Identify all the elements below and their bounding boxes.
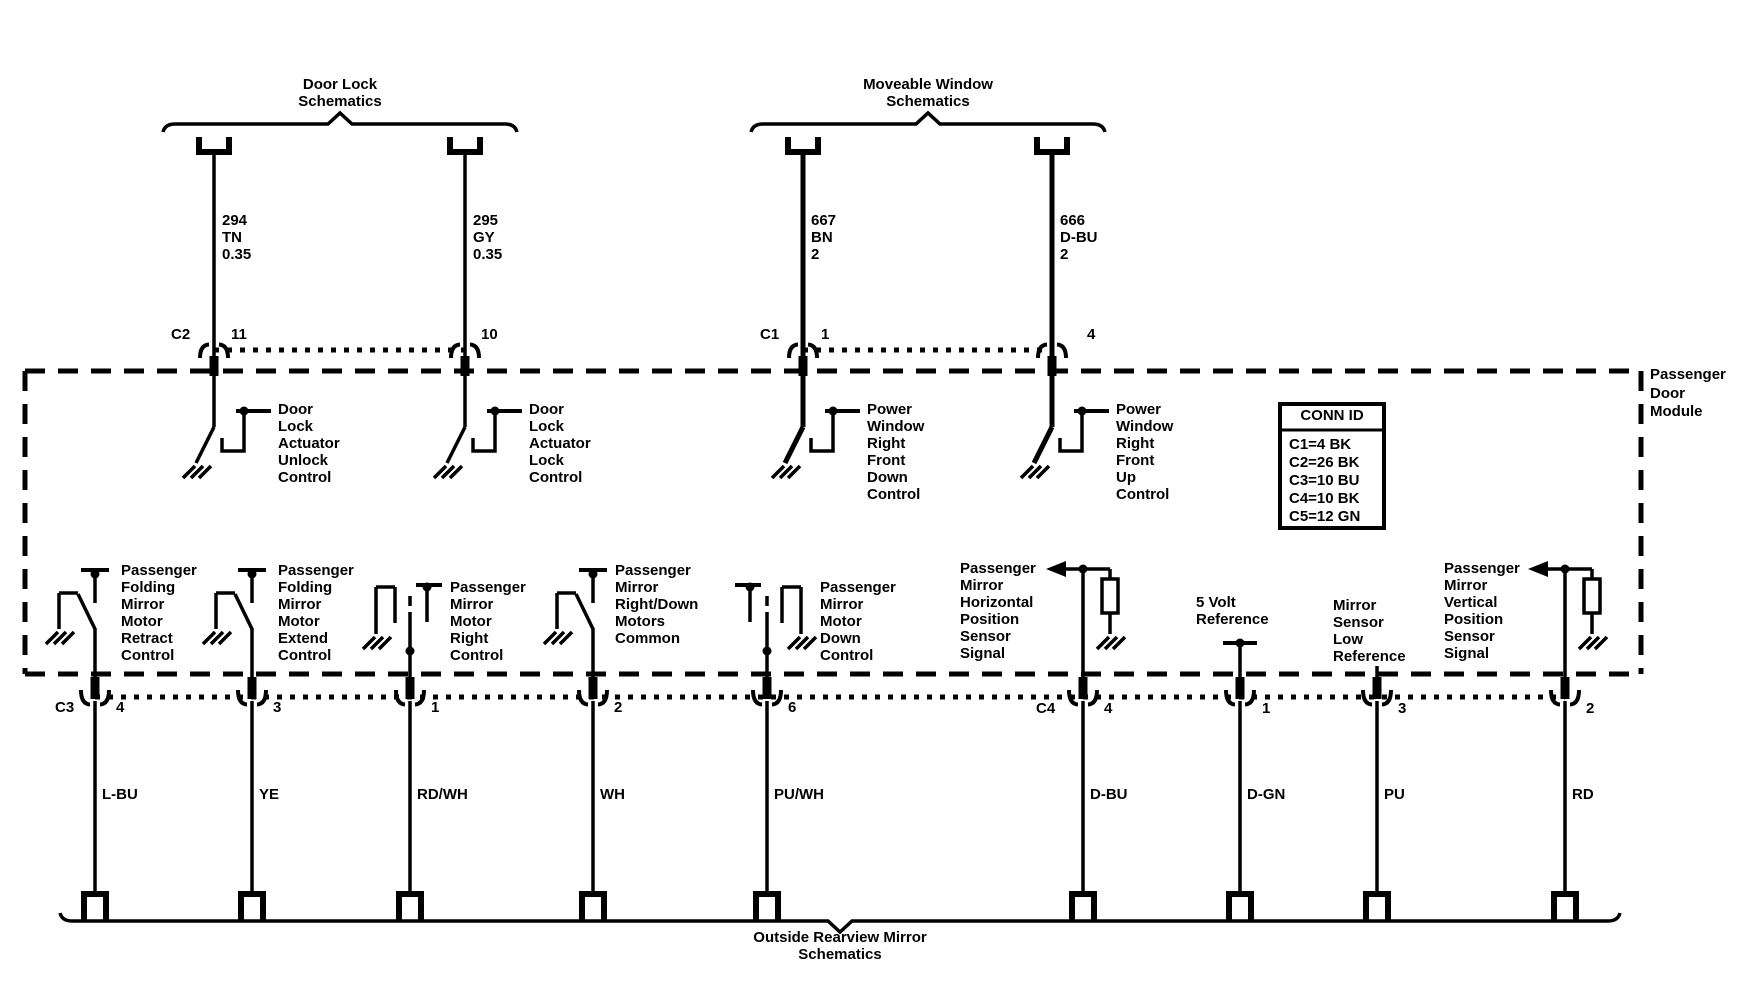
conn-id-title: CONN ID xyxy=(1300,407,1363,424)
connector-label-c1: C1 xyxy=(760,326,779,343)
pin-number: 4 xyxy=(1087,326,1095,343)
door-lock-brace xyxy=(163,113,517,132)
function-label: 5 Volt Reference xyxy=(1196,594,1269,628)
wire-color-label: RD xyxy=(1572,786,1594,803)
brace-label-door-lock: Door Lock Schematics xyxy=(298,76,381,110)
circuit-vertical-sensor xyxy=(1528,561,1607,920)
switch-contact-icon xyxy=(222,407,271,452)
switch-contact-icon xyxy=(1060,407,1109,452)
ground-icon xyxy=(544,632,572,644)
wire-color-label: YE xyxy=(259,786,279,803)
function-label: Power Window Right Front Up Control xyxy=(1116,401,1173,503)
circuit-mirror-retract xyxy=(46,570,109,921)
ground-icon xyxy=(772,466,800,478)
wire-color-label: RD/WH xyxy=(417,786,468,803)
pin-number: 2 xyxy=(1586,700,1594,717)
brace-label-outside-mirror: Outside Rearview Mirror Schematics xyxy=(753,929,926,963)
module-label: Passenger Door Module xyxy=(1650,366,1726,422)
pin-number: 4 xyxy=(116,699,124,716)
ground-icon xyxy=(434,466,462,478)
junction-dot xyxy=(248,570,257,579)
circuit-mirror-extend xyxy=(203,570,266,921)
resistor-icon xyxy=(1102,579,1118,613)
wire-label: 295 GY 0.35 xyxy=(473,212,502,263)
function-label: Mirror Sensor Low Reference xyxy=(1333,597,1406,665)
circuit-mirror-common xyxy=(544,570,607,921)
circuit-horizontal-sensor xyxy=(1046,561,1125,920)
switch-contact-icon xyxy=(811,407,860,452)
pin-number: 4 xyxy=(1104,700,1112,717)
circuit-window-down xyxy=(772,137,860,478)
switch-contact-icon xyxy=(416,583,442,623)
ground-icon xyxy=(363,637,391,649)
pin-number: 3 xyxy=(273,699,281,716)
wire-color-label: WH xyxy=(600,786,625,803)
function-label: Passenger Mirror Motor Right Control xyxy=(450,579,526,664)
junction-dot xyxy=(91,570,100,579)
harness-terminal xyxy=(1069,891,1097,920)
harness-terminal xyxy=(1034,137,1070,155)
wire-label: 294 TN 0.35 xyxy=(222,212,251,263)
switch-contact-icon xyxy=(473,407,522,452)
moveable-window-brace xyxy=(751,113,1105,132)
pin-number: 2 xyxy=(614,699,622,716)
function-label: Door Lock Actuator Lock Control xyxy=(529,401,591,486)
function-label: Passenger Mirror Motor Down Control xyxy=(820,579,896,664)
ground-icon xyxy=(46,632,74,644)
harness-terminal xyxy=(579,891,607,920)
harness-terminal xyxy=(396,891,424,920)
switch-contact-icon xyxy=(238,570,266,604)
conn-id-row: C3=10 BU xyxy=(1289,472,1359,489)
circuit-door-unlock xyxy=(183,137,271,478)
pin-number: 11 xyxy=(231,326,247,343)
junction-dot xyxy=(763,647,772,656)
conn-id-row: C1=4 BK xyxy=(1289,436,1351,453)
pin-number: 1 xyxy=(821,326,829,343)
pin-number: 3 xyxy=(1398,700,1406,717)
junction-dot xyxy=(406,647,415,656)
circuit-window-up xyxy=(1021,137,1109,478)
wire-color-label: PU/WH xyxy=(774,786,824,803)
harness-terminal xyxy=(447,137,483,155)
function-label: Power Window Right Front Down Control xyxy=(867,401,924,503)
ground-icon xyxy=(1097,637,1125,649)
function-label: Passenger Mirror Horizontal Position Sen… xyxy=(960,560,1036,662)
function-label: Door Lock Actuator Unlock Control xyxy=(278,401,340,486)
circuit-mirror-down xyxy=(735,583,816,921)
pin-number: 6 xyxy=(788,699,796,716)
pin-number: 1 xyxy=(431,699,439,716)
connector-label-c3: C3 xyxy=(55,699,74,716)
wire-color-label: L-BU xyxy=(102,786,138,803)
function-label: Passenger Mirror Right/Down Motors Commo… xyxy=(615,562,698,647)
function-label: Passenger Folding Mirror Motor Extend Co… xyxy=(278,562,354,664)
ground-icon xyxy=(788,637,816,649)
function-label: Passenger Folding Mirror Motor Retract C… xyxy=(121,562,197,664)
pin-number: 1 xyxy=(1262,700,1270,717)
switch-contact-icon xyxy=(735,583,761,623)
circuit-door-lock xyxy=(434,137,522,478)
conn-id-row: C5=12 GN xyxy=(1289,508,1360,525)
harness-terminal xyxy=(1363,891,1391,920)
resistor-icon xyxy=(1584,579,1600,613)
circuit-five-volt-ref xyxy=(1223,639,1257,921)
wire-label: 666 D-BU 2 xyxy=(1060,212,1098,263)
switch-contact-icon xyxy=(579,570,607,604)
pin-number: 10 xyxy=(481,326,498,343)
harness-terminal xyxy=(196,137,232,155)
brace-label-moveable-window: Moveable Window Schematics xyxy=(863,76,993,110)
wiring-diagram: Door Lock SchematicsMoveable Window Sche… xyxy=(0,0,1750,1008)
ground-icon xyxy=(183,466,211,478)
harness-terminal xyxy=(1551,891,1579,920)
harness-terminal xyxy=(238,891,266,920)
ground-icon xyxy=(1579,637,1607,649)
connector-label-c2: C2 xyxy=(171,326,190,343)
conn-id-row: C2=26 BK xyxy=(1289,454,1359,471)
wire-color-label: D-BU xyxy=(1090,786,1128,803)
wire-color-label: D-GN xyxy=(1247,786,1285,803)
switch-contact-icon xyxy=(81,570,109,604)
circuit-mirror-right xyxy=(363,583,442,921)
ground-icon xyxy=(203,632,231,644)
junction-dot xyxy=(589,570,598,579)
schematic-graphics xyxy=(0,0,1750,1008)
ground-icon xyxy=(1021,466,1049,478)
wire-color-label: PU xyxy=(1384,786,1405,803)
connector-label-c4: C4 xyxy=(1036,700,1055,717)
harness-terminal xyxy=(81,891,109,920)
conn-id-row: C4=10 BK xyxy=(1289,490,1359,507)
function-label: Passenger Mirror Vertical Position Senso… xyxy=(1444,560,1520,662)
harness-terminal xyxy=(785,137,821,155)
wire-label: 667 BN 2 xyxy=(811,212,836,263)
harness-terminal xyxy=(1226,891,1254,920)
harness-terminal xyxy=(753,891,781,920)
